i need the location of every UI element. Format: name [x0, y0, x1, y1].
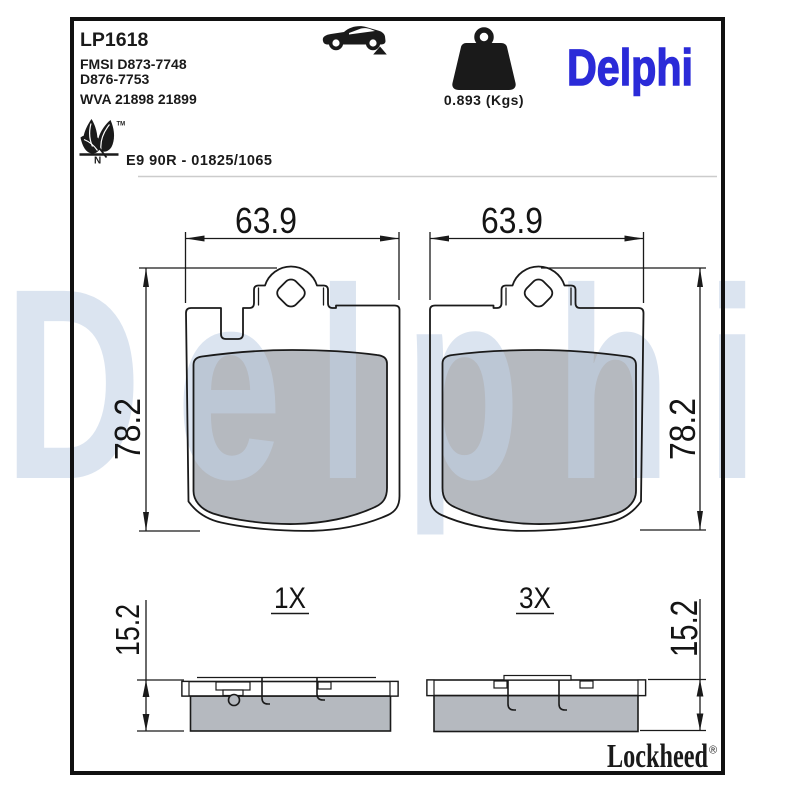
- svg-text:Delphi: Delphi: [567, 39, 693, 96]
- svg-text:15.2: 15.2: [664, 600, 706, 657]
- svg-text:78.2: 78.2: [107, 398, 148, 460]
- svg-text:FMSI D873-7748: FMSI D873-7748: [80, 56, 187, 72]
- svg-text:D876-7753: D876-7753: [80, 71, 149, 87]
- svg-text:0.893 (Kgs): 0.893 (Kgs): [444, 92, 524, 108]
- svg-text:WVA 21898 21899: WVA 21898 21899: [80, 91, 197, 107]
- svg-text:1X: 1X: [274, 582, 306, 615]
- svg-text:N: N: [94, 156, 101, 167]
- svg-text:TM: TM: [117, 122, 126, 128]
- svg-text:15.2: 15.2: [109, 604, 146, 656]
- svg-text:E9 90R - 01825/1065: E9 90R - 01825/1065: [126, 153, 272, 169]
- svg-text:78.2: 78.2: [662, 398, 703, 460]
- svg-text:LP1618: LP1618: [80, 29, 148, 51]
- svg-text:63.9: 63.9: [481, 200, 543, 241]
- svg-text:63.9: 63.9: [235, 200, 297, 241]
- svg-text:®: ®: [709, 745, 717, 757]
- svg-text:Lockheed: Lockheed: [607, 738, 708, 775]
- svg-text:3X: 3X: [519, 582, 551, 615]
